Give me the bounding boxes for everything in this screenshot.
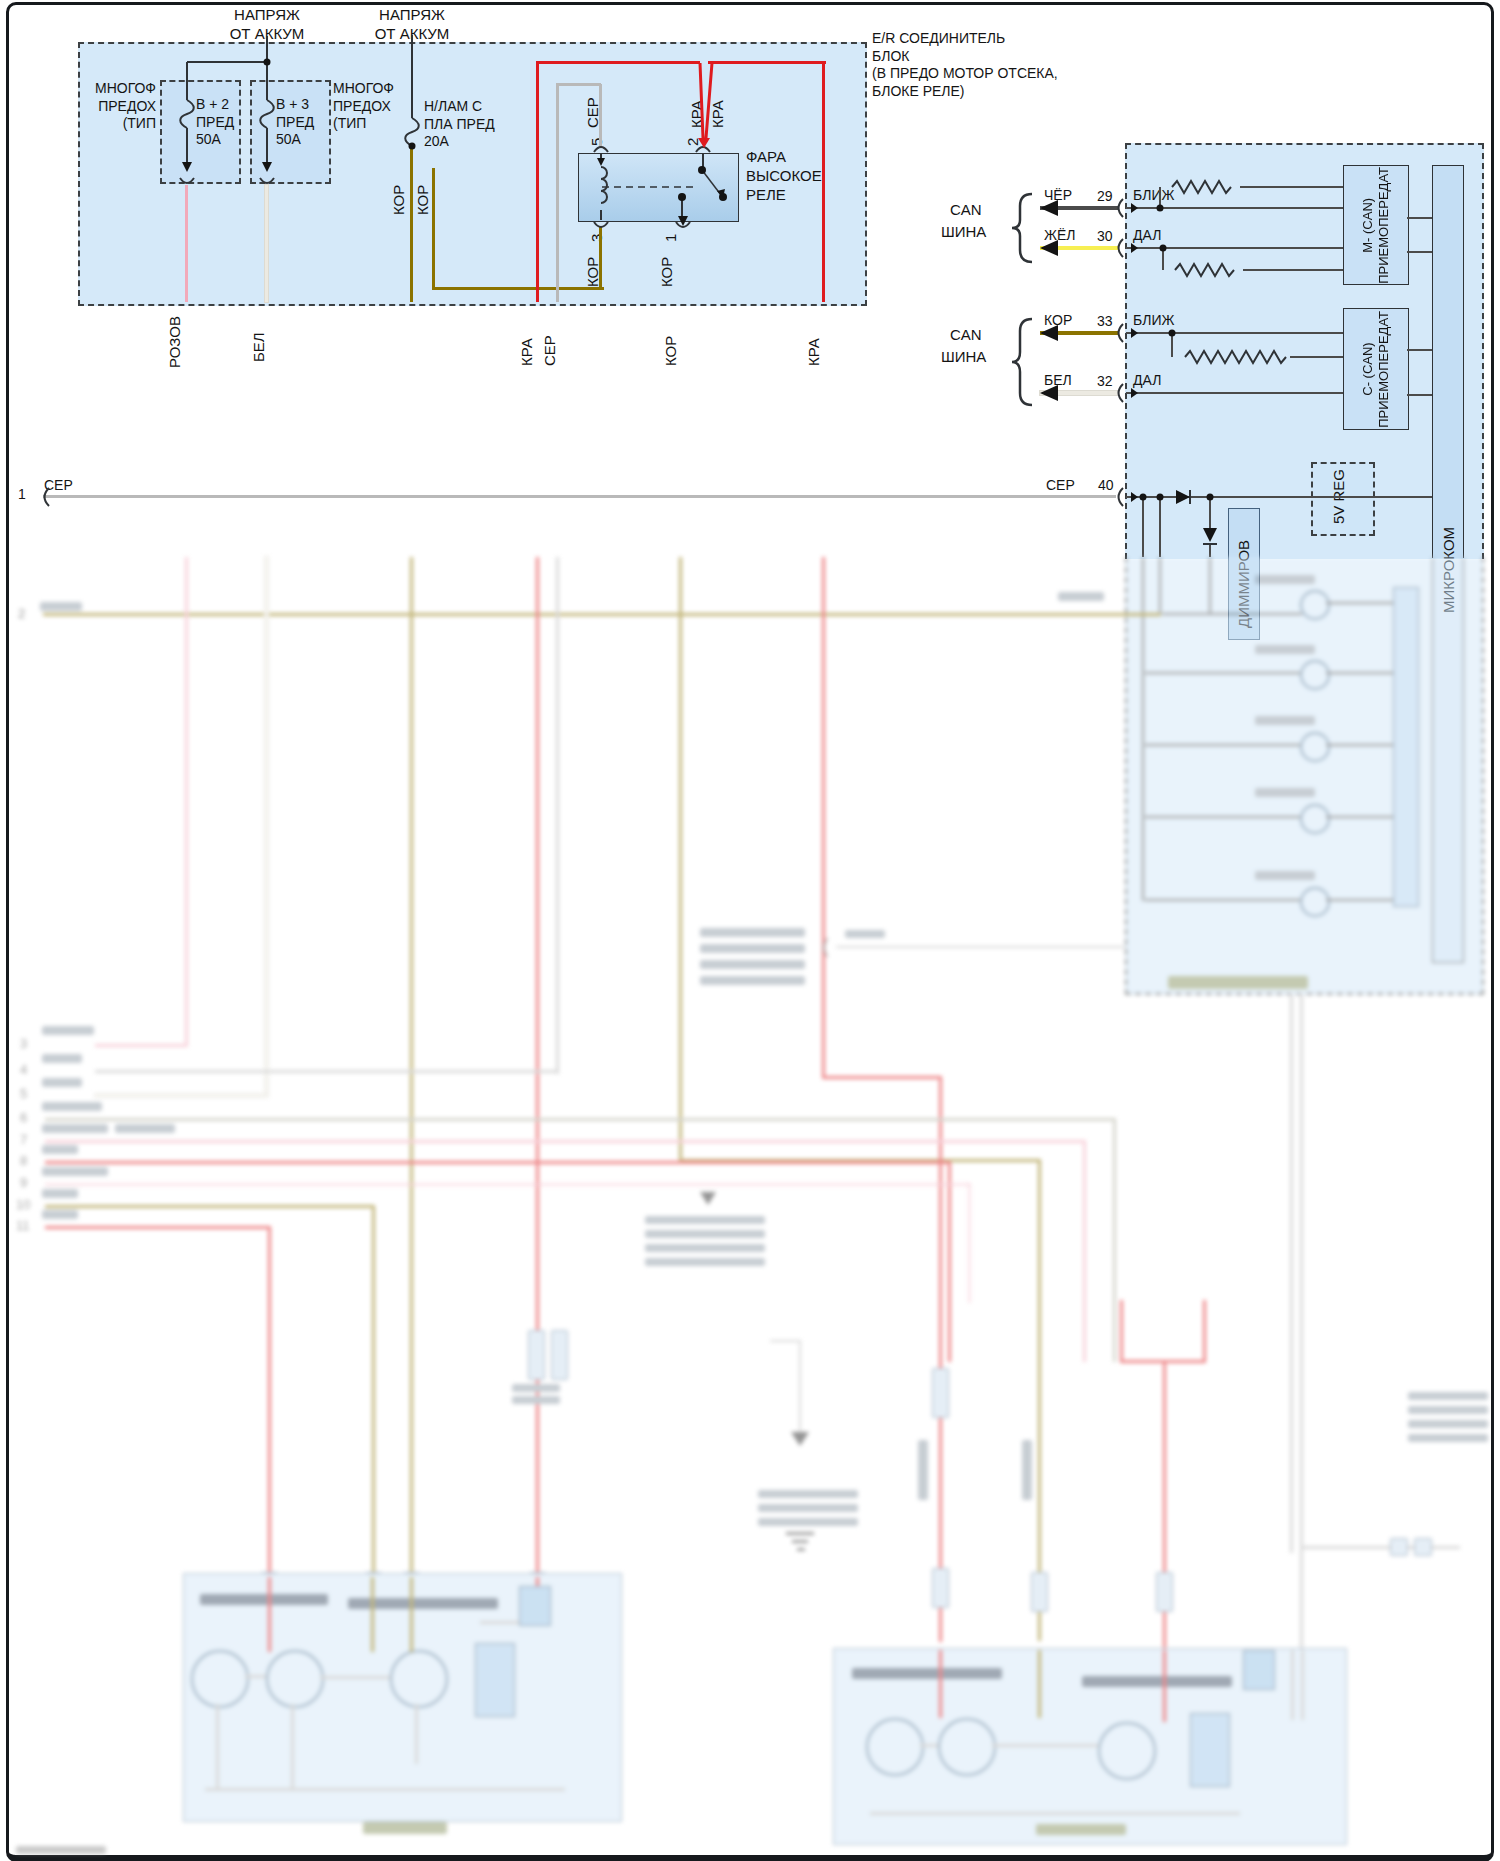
row10-line (45, 1205, 375, 1208)
ground-wire (799, 1340, 801, 1432)
lamp-link (245, 1675, 266, 1678)
row6-down (1113, 1118, 1116, 1362)
wire-olive681-lower (679, 557, 682, 1162)
t4-out (1326, 816, 1393, 818)
entry-red-right-a (939, 1650, 942, 1718)
left-lamp-2 (266, 1650, 324, 1708)
t5-out (1326, 899, 1393, 901)
blurred-label (700, 944, 805, 953)
blurred-label (1408, 1406, 1488, 1414)
bottom-code-blurred (16, 1846, 106, 1854)
connector (1156, 1572, 1173, 1612)
right-lamp-3 (1098, 1722, 1156, 1780)
t4-in (1145, 816, 1300, 818)
entry-gray-right-b (1301, 1650, 1304, 1720)
ground-bar-2 (792, 1540, 808, 1543)
connector (932, 1568, 949, 1608)
ground-bar-1 (786, 1532, 814, 1535)
drop-1210-lower (1209, 557, 1211, 615)
entry-olive-right (1038, 1650, 1041, 1718)
red-merge-a (1120, 1300, 1123, 1362)
connector (1390, 1538, 1408, 1556)
blurred-label (645, 1258, 765, 1266)
right-leveling-actuator (1190, 1713, 1230, 1787)
row4-number: 4 (20, 1062, 27, 1078)
blurred-label (1022, 1440, 1032, 1500)
blurred-label (512, 1396, 560, 1404)
right-headlamp-caption-blurred (1036, 1824, 1126, 1835)
transistor-2 (1300, 660, 1330, 690)
ground-arrow-icon (791, 1432, 809, 1446)
connector (932, 1368, 949, 1418)
lamp-drop (415, 1704, 418, 1764)
left-connector-tab (519, 1586, 551, 1626)
blurred-label (1255, 788, 1315, 797)
blurred-label (918, 1440, 928, 1500)
row11-down (268, 1226, 271, 1577)
wire-white-lower (265, 557, 268, 1096)
transistor-3 (1300, 732, 1330, 762)
lamp-bus (205, 1788, 565, 1791)
blurred-label (200, 1594, 328, 1605)
left-lamp-3 (390, 1650, 448, 1708)
connector (551, 1330, 568, 1380)
entry-red-right-b (1163, 1650, 1166, 1722)
row2-number: 2 (18, 606, 25, 622)
lamp-link (992, 1744, 1098, 1747)
row8-down (948, 1161, 951, 1362)
t3-out (1326, 744, 1393, 746)
t2-in (1145, 672, 1300, 674)
row8-line (45, 1161, 950, 1164)
row7-line (45, 1140, 1085, 1143)
blurred-label (42, 1026, 94, 1035)
connector-paren: ( (822, 934, 829, 959)
blurred-label (512, 1384, 560, 1392)
blurred-label (758, 1490, 858, 1498)
left-headlamp-caption-blurred (363, 1822, 447, 1834)
blurred-label (700, 960, 805, 969)
blurred-label (1255, 871, 1315, 880)
blurred-label (1408, 1420, 1488, 1428)
entry-red-left (268, 1577, 271, 1652)
row3-pink-stub (95, 1044, 187, 1047)
lamp-link (320, 1676, 390, 1679)
row9-down (968, 1183, 971, 1303)
blurred-label (42, 1167, 108, 1176)
blurred-label (700, 976, 805, 985)
blurred-label (115, 1124, 175, 1133)
wiring-diagram-page: НАПРЯЖОТ АККУМ НАПРЯЖОТ АККУМ E/R СОЕДИН… (0, 0, 1500, 1861)
lamp-bus (870, 1812, 1240, 1815)
blurred-label (645, 1230, 765, 1238)
wire-red538-lower (536, 557, 539, 1577)
blurred-label (42, 1189, 78, 1198)
t1-in (1162, 613, 1302, 615)
ground-stub (770, 1340, 800, 1342)
lamp-drop (216, 1704, 219, 1788)
gray-mod-a (1290, 993, 1293, 1553)
blurred-label (845, 930, 885, 938)
blurred-label (700, 928, 805, 937)
blurred-label (758, 1518, 858, 1526)
blurred-label (1058, 592, 1104, 601)
row11-number: 11 (16, 1218, 30, 1234)
row7-down (1083, 1140, 1086, 1362)
entry-olive-left-a (371, 1577, 374, 1652)
row7-number: 7 (20, 1132, 27, 1148)
blurred-label (1082, 1676, 1232, 1687)
blurred-lower-section: 2 3 4 5 6 7 8 (0, 0, 1500, 1861)
row6-line (45, 1118, 1115, 1121)
blurred-label (42, 1210, 78, 1219)
blurred-label (758, 1504, 858, 1512)
wire-gray-lower (556, 557, 559, 1074)
gray-mod-b (1300, 993, 1303, 1653)
row9-line (45, 1183, 970, 1186)
blurred-label (645, 1216, 765, 1224)
blurred-label (1255, 575, 1315, 584)
row10-down (372, 1205, 375, 1577)
wire-olive1040-down (1038, 1159, 1041, 1641)
row5-white-stub (95, 1094, 267, 1097)
blurred-label (42, 1078, 82, 1087)
t1-out (1326, 602, 1393, 604)
drop-1143-lower (1142, 557, 1144, 901)
blurred-label (40, 602, 82, 611)
row6-number: 6 (20, 1110, 27, 1126)
connector (1031, 1572, 1048, 1612)
blurred-label (1255, 716, 1315, 725)
red-merge-b (1203, 1300, 1206, 1362)
row3-number: 3 (20, 1036, 27, 1052)
blurred-label (1408, 1392, 1488, 1400)
blurred-label (42, 1145, 78, 1154)
connector (1414, 1538, 1432, 1556)
drop-1160-lower (1159, 557, 1161, 615)
lamp-drop (291, 1704, 294, 1788)
blurred-label (42, 1102, 102, 1111)
lamp-link (920, 1744, 938, 1747)
left-lamp-1 (191, 1650, 249, 1708)
module-caption-blurred (1168, 976, 1308, 989)
entry-olive-left-b (410, 1577, 413, 1652)
right-connector-tab (1243, 1650, 1275, 1690)
row11-line (45, 1226, 270, 1229)
transistor-4 (1300, 804, 1330, 834)
wire-red824-lower (822, 557, 825, 1079)
transistor-1 (1300, 590, 1330, 620)
blurred-label (645, 1244, 765, 1252)
blurred-label (42, 1124, 108, 1133)
blurred-label (42, 1054, 82, 1063)
front-module-lower (1125, 557, 1484, 995)
row8-number: 8 (20, 1153, 27, 1169)
ground-bar-3 (797, 1548, 805, 1551)
wire-pink-lower (185, 557, 188, 1047)
blurred-label (852, 1668, 1002, 1679)
mcu-bar-lower (1432, 557, 1464, 963)
gray-mod-stub (1300, 1546, 1460, 1549)
left-leveling-actuator (475, 1643, 515, 1717)
right-lamp-2 (938, 1718, 996, 1776)
row9-number: 9 (20, 1175, 27, 1191)
entry-gray-right-a (1291, 1650, 1294, 1720)
t5-in (1145, 899, 1300, 901)
right-lamp-1 (866, 1718, 924, 1776)
t2-out (1326, 672, 1393, 674)
splice-icon (700, 1192, 716, 1205)
wire-olive-row2 (43, 613, 1161, 616)
connector (528, 1330, 545, 1380)
blurred-label (1255, 645, 1315, 654)
row5-number: 5 (20, 1086, 27, 1102)
line-947 (836, 946, 1125, 948)
blurred-label (1408, 1434, 1488, 1442)
wire-red824-horiz (822, 1076, 942, 1079)
t3-in (1145, 744, 1300, 746)
wire-olive413-lower (410, 557, 413, 1577)
row10-number: 10 (16, 1197, 30, 1213)
driver-bar (1393, 587, 1419, 907)
transistor-5 (1300, 887, 1330, 917)
row4-gray-stub (95, 1070, 558, 1073)
